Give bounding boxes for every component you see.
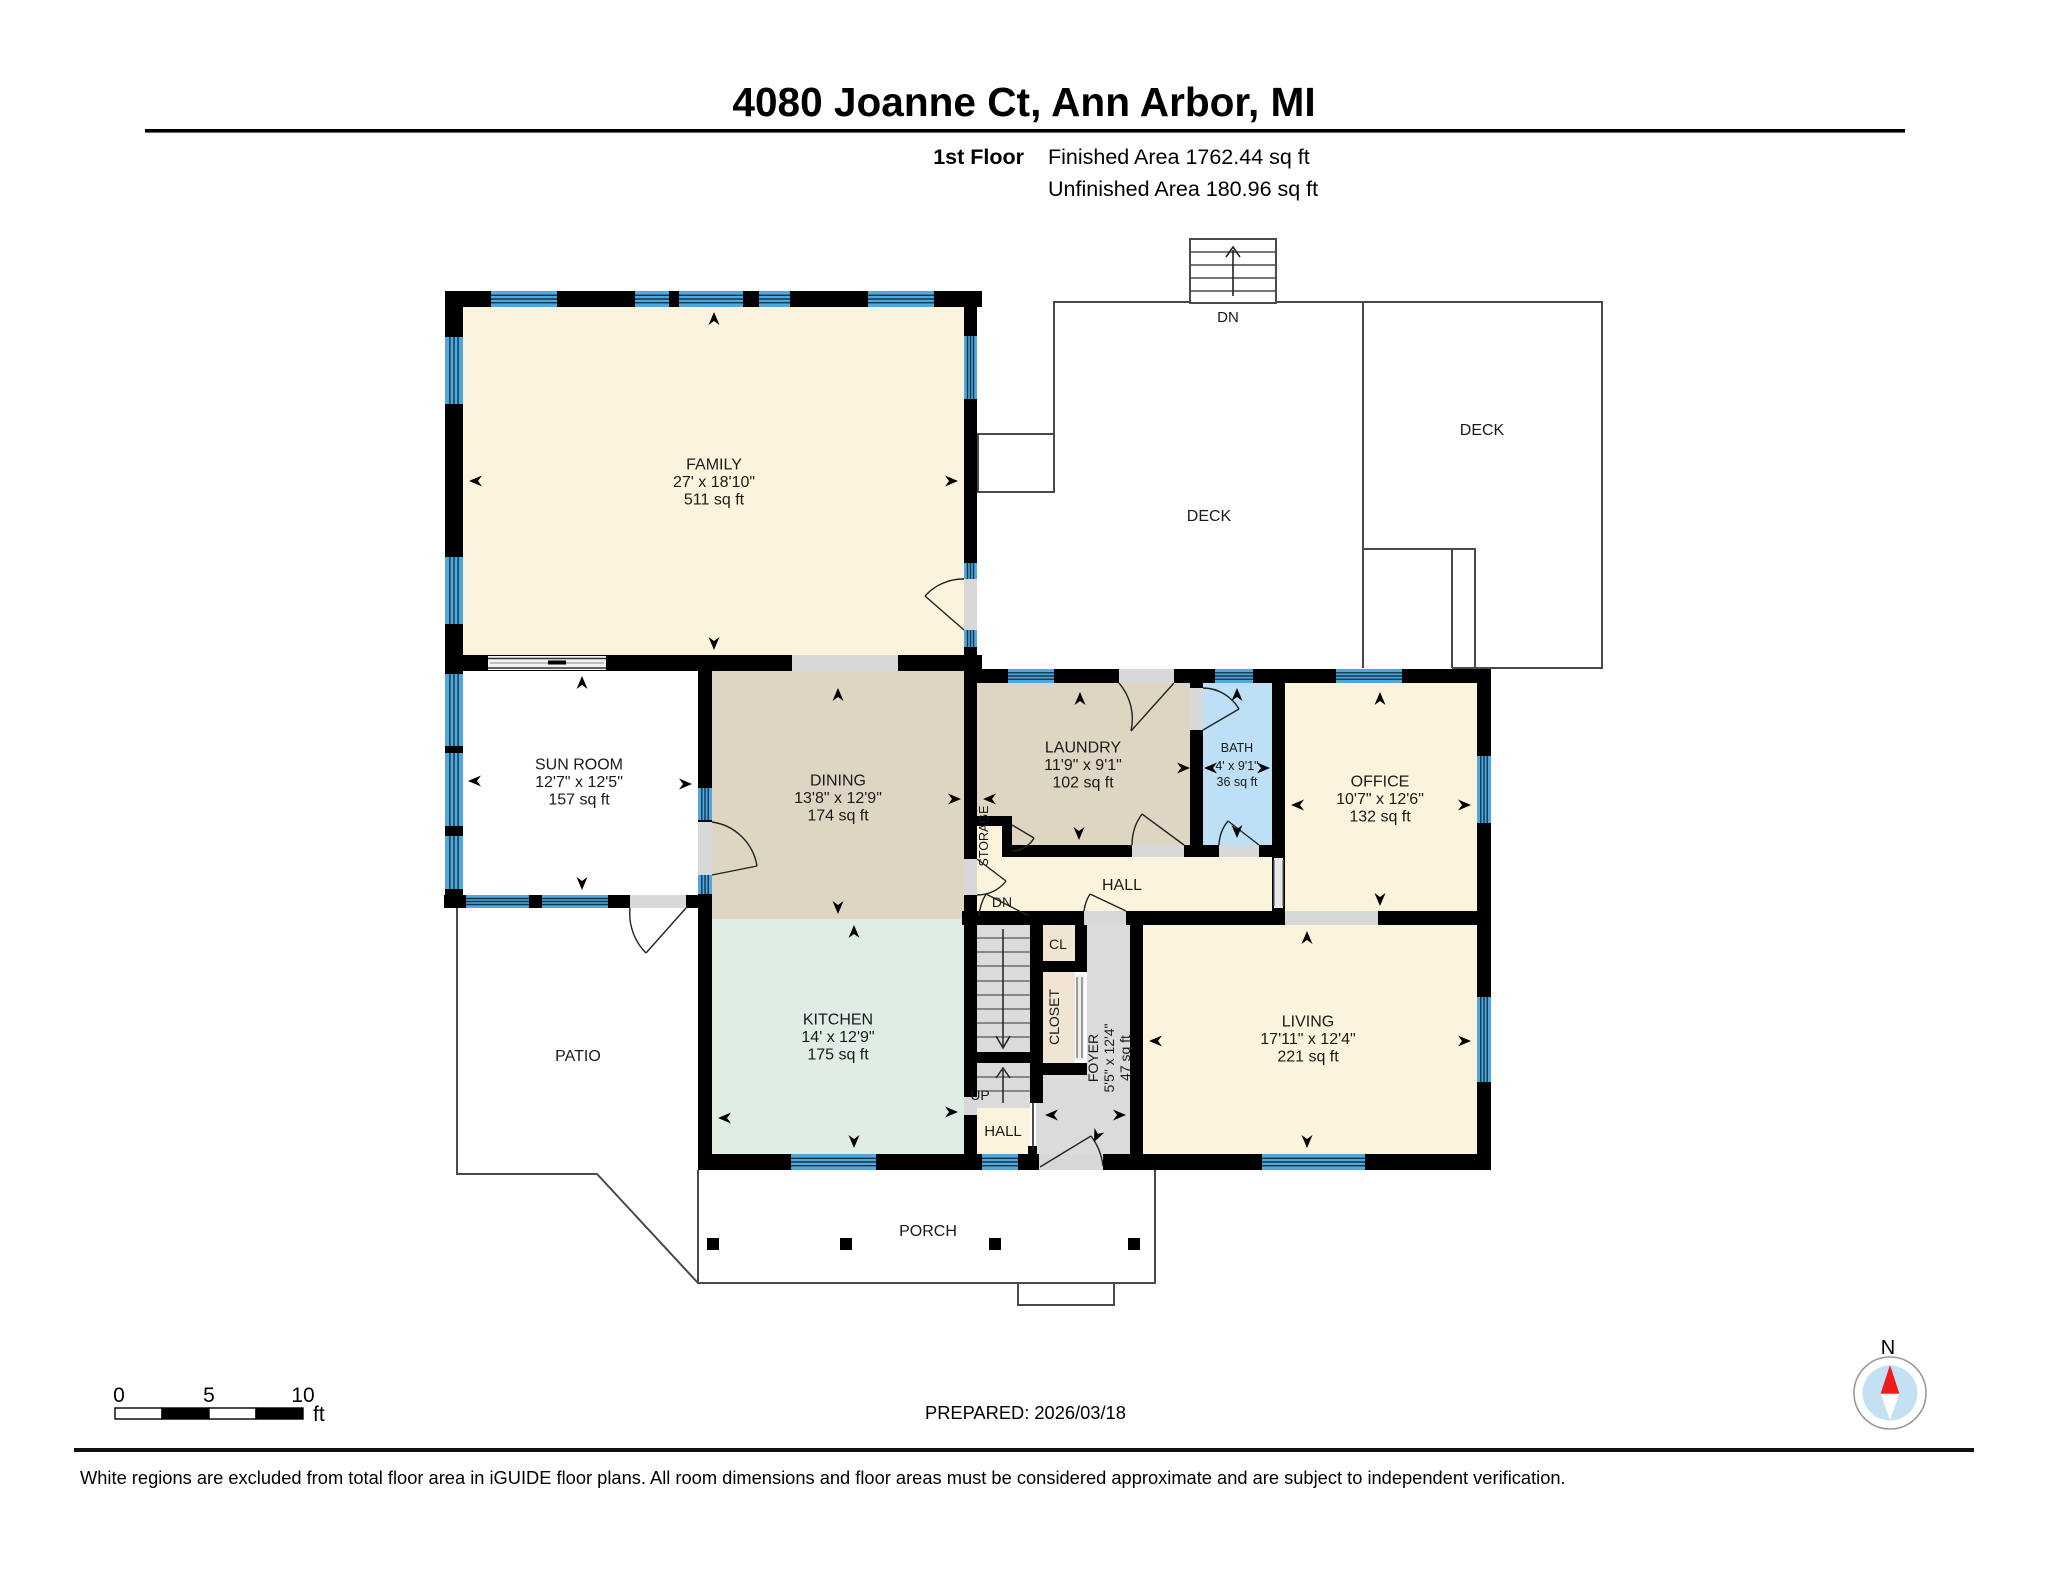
svg-text:ft: ft (313, 1403, 325, 1426)
svg-text:4080 Joanne Ct, Ann Arbor, MI: 4080 Joanne Ct, Ann Arbor, MI (732, 79, 1315, 125)
svg-text:DECK: DECK (1187, 508, 1232, 525)
svg-text:36 sq ft: 36 sq ft (1217, 775, 1259, 789)
svg-text:HALL: HALL (984, 1123, 1022, 1140)
svg-text:DN: DN (992, 894, 1012, 910)
svg-text:STORAGE: STORAGE (977, 806, 991, 867)
svg-text:1st Floor: 1st Floor (933, 145, 1024, 169)
svg-text:N: N (1881, 1337, 1895, 1359)
svg-text:0: 0 (113, 1384, 125, 1407)
svg-text:4' x 9'1": 4' x 9'1" (1215, 759, 1258, 773)
svg-text:HALL: HALL (1102, 877, 1142, 894)
svg-text:10: 10 (291, 1384, 314, 1407)
svg-text:DN: DN (1217, 309, 1239, 326)
svg-text:FOYER: FOYER (1085, 1034, 1101, 1082)
svg-text:Finished Area 1762.44 sq ft: Finished Area 1762.44 sq ft (1048, 145, 1310, 169)
svg-text:PATIO: PATIO (555, 1048, 601, 1065)
svg-text:5: 5 (203, 1384, 215, 1407)
svg-text:5'5" x 12'4": 5'5" x 12'4" (1101, 1023, 1117, 1092)
svg-text:PREPARED: 2026/03/18: PREPARED: 2026/03/18 (925, 1402, 1126, 1423)
svg-text:CL: CL (1049, 936, 1067, 952)
svg-text:KITCHEN14' x 12'9"175 sq ft: KITCHEN14' x 12'9"175 sq ft (801, 1012, 874, 1064)
svg-text:CLOSET: CLOSET (1046, 989, 1062, 1045)
svg-text:BATH: BATH (1221, 741, 1253, 755)
svg-text:White regions are excluded fro: White regions are excluded from total fl… (80, 1467, 1566, 1488)
svg-text:Unfinished Area 180.96 sq ft: Unfinished Area 180.96 sq ft (1048, 177, 1318, 201)
svg-text:LAUNDRY11'9" x 9'1"102 sq ft: LAUNDRY11'9" x 9'1"102 sq ft (1044, 740, 1122, 792)
svg-text:47 sq ft: 47 sq ft (1117, 1035, 1133, 1081)
svg-text:DECK: DECK (1460, 422, 1505, 439)
svg-text:PORCH: PORCH (899, 1223, 957, 1240)
svg-text:UP: UP (970, 1087, 989, 1103)
